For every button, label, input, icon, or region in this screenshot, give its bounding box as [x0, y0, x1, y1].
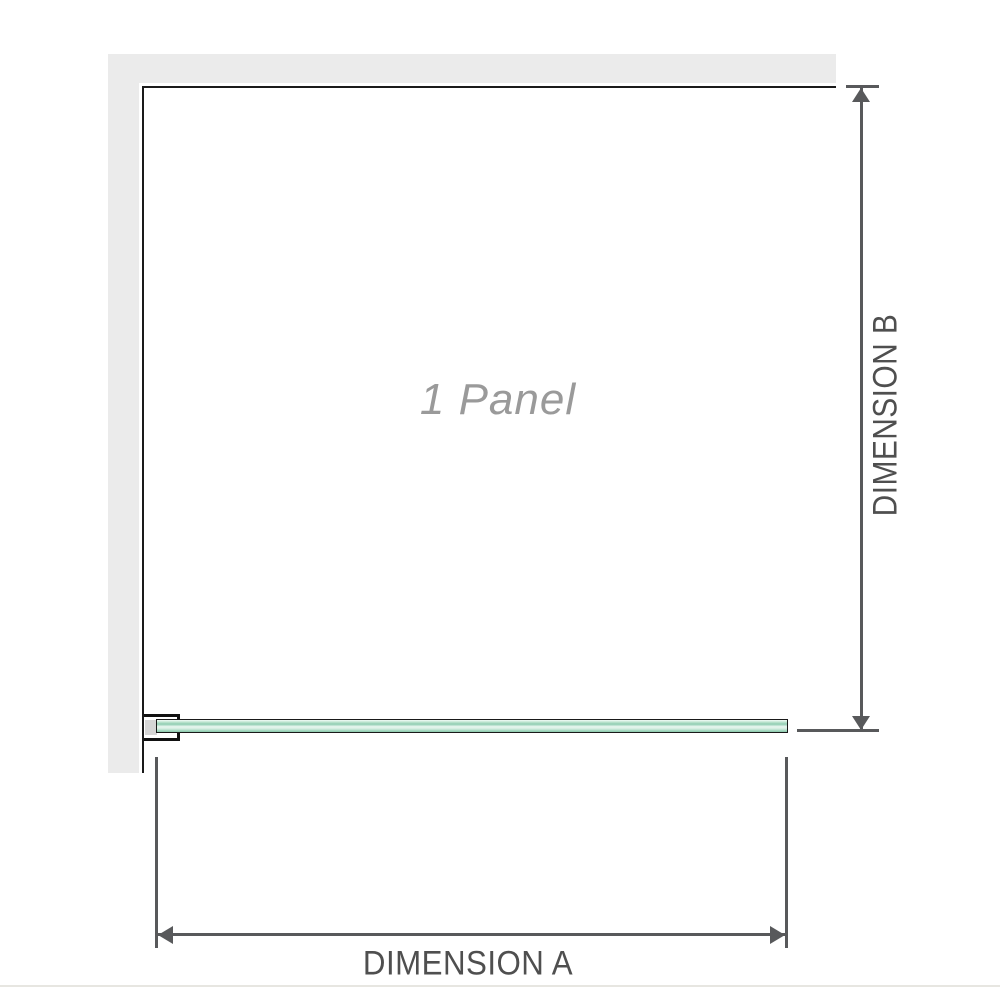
- dim-b-line: [860, 88, 863, 729]
- wall-inner-edge-top-line: [142, 86, 836, 88]
- arrow-up-icon: [852, 88, 870, 102]
- dimension-diagram: 1 Panel DIMENSION B DIMENSION A: [0, 0, 1000, 1000]
- wall-top-strip: [108, 54, 836, 83]
- image-bottom-border-line: [0, 985, 1000, 987]
- dim-a-line: [158, 933, 785, 936]
- dim-a-extension-tick-right: [785, 757, 788, 948]
- dim-a-extension-tick-left: [155, 757, 158, 948]
- dim-a-label: DIMENSION A: [363, 945, 573, 984]
- glass-panel-bar: [156, 719, 788, 733]
- dim-b-label: DIMENSION B: [867, 314, 906, 517]
- arrow-right-icon: [770, 926, 785, 944]
- panel-count-label: 1 Panel: [420, 375, 576, 425]
- wall-inner-edge-left-line: [142, 86, 144, 773]
- wall-left-strip: [108, 54, 139, 773]
- arrow-left-icon: [158, 926, 173, 944]
- arrow-down-icon: [852, 716, 870, 730]
